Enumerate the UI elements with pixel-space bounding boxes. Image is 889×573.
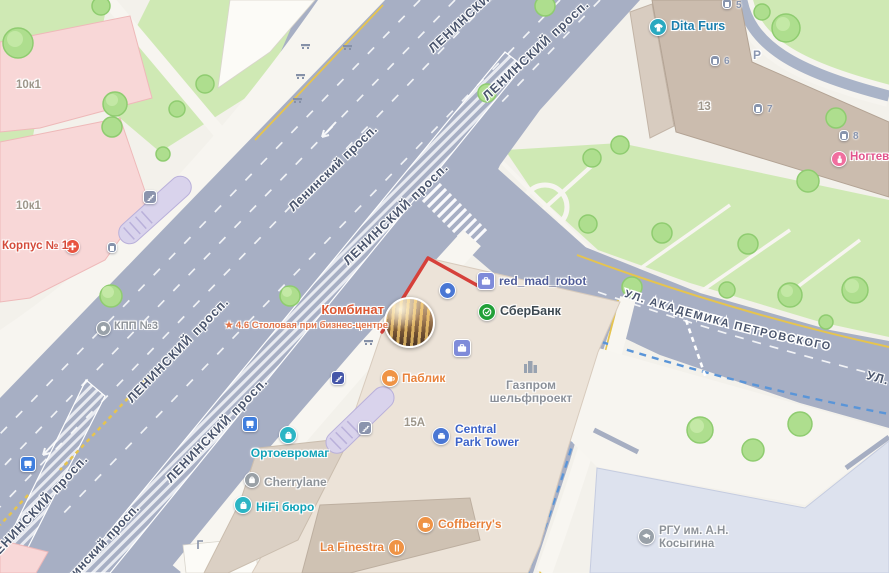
poi-label-kpp3[interactable]: КПП №3 bbox=[114, 320, 158, 332]
kombinat-photo-thumbnail[interactable] bbox=[384, 297, 435, 348]
poi-label-line: Косыгина bbox=[659, 538, 729, 551]
university-icon-rgu[interactable] bbox=[638, 528, 655, 545]
poi-label-red-mad-robot[interactable]: red_mad_robot bbox=[499, 274, 586, 288]
poi-label-hifi-buro[interactable]: HiFi бюро bbox=[256, 500, 314, 514]
office-icon-red-mad-robot[interactable] bbox=[477, 272, 495, 290]
entrance-icon-8[interactable] bbox=[839, 130, 849, 141]
entrance-icon-hospital[interactable] bbox=[107, 242, 117, 253]
poi-label-sberbank[interactable]: СберБанк bbox=[500, 304, 561, 318]
poi-label-la-finestra[interactable]: La Finestra bbox=[298, 540, 384, 554]
poi-label-rgu[interactable]: РГУ им. А.Н. Косыгина bbox=[659, 525, 729, 551]
shop-icon-hifi[interactable] bbox=[234, 496, 252, 514]
nail-salon-icon[interactable] bbox=[831, 151, 847, 167]
bus-stop-icon-1[interactable] bbox=[242, 416, 258, 432]
poi-label-dita-furs[interactable]: Dita Furs bbox=[671, 19, 725, 33]
cafe-icon-coffberrys[interactable] bbox=[417, 516, 434, 533]
map-viewport[interactable]: ЛЕНИНСКИЙ ЛЕНИНСКИЙ просп. Ленинский про… bbox=[0, 0, 889, 573]
checkpoint-icon-kpp[interactable] bbox=[96, 321, 111, 336]
building-number-15a: 15А bbox=[404, 417, 425, 429]
rating-star-icon: ★ bbox=[225, 320, 234, 331]
entrance-icon-6[interactable] bbox=[710, 55, 720, 66]
entrance-number: 8 bbox=[853, 131, 859, 142]
poi-label-central-park-tower[interactable]: Central Park Tower bbox=[455, 423, 519, 449]
building-number-10k1: 10к1 bbox=[16, 79, 41, 91]
entrance-number: 5 bbox=[736, 0, 742, 11]
poi-label-coffberrys[interactable]: Coffberry's bbox=[438, 517, 502, 531]
cafe-icon-pablik[interactable] bbox=[381, 369, 399, 387]
underpass-sign-icon-1[interactable] bbox=[143, 190, 157, 204]
entrance-number: 6 bbox=[724, 56, 730, 67]
entrance-number: 7 bbox=[767, 104, 773, 115]
poi-label-line: шельфпроект bbox=[471, 392, 591, 405]
entrance-icon-5[interactable] bbox=[722, 0, 732, 9]
business-center-icon-cpt[interactable] bbox=[432, 427, 450, 445]
office-building-icon-gazprom[interactable] bbox=[523, 360, 538, 373]
poi-label-ortoevromag[interactable]: Ортоевромаг bbox=[230, 446, 350, 460]
parking-label: P bbox=[753, 48, 761, 62]
bus-stop-icon-2[interactable] bbox=[20, 456, 36, 472]
poi-label-pablik[interactable]: Паблик bbox=[402, 371, 445, 385]
poi-category: Столовая при бизнес-центре bbox=[252, 320, 388, 331]
shop-icon-ortoevromag[interactable] bbox=[279, 426, 297, 444]
poi-label-nail-studio[interactable]: Ногтевая bbox=[850, 151, 889, 163]
poi-label-cherrylane[interactable]: Cherrylane bbox=[264, 475, 327, 489]
underpass-sign-icon-3[interactable] bbox=[358, 421, 372, 435]
sberbank-icon[interactable] bbox=[478, 303, 496, 321]
entrance-icon-7[interactable] bbox=[753, 103, 763, 114]
shop-icon-cherrylane[interactable] bbox=[244, 472, 260, 488]
poi-dot-icon[interactable] bbox=[439, 282, 456, 299]
poi-label-gazprom[interactable]: Газпром шельфпроект bbox=[471, 379, 591, 405]
poi-sub-kombinat[interactable]: ★ 4.6 Столовая при бизнес-центре bbox=[210, 320, 388, 331]
restaurant-icon-la-finestra[interactable] bbox=[388, 539, 405, 556]
clothing-store-icon[interactable] bbox=[649, 18, 667, 36]
poi-label-korpus1[interactable]: Корпус № 1 bbox=[2, 240, 68, 252]
building-number-10k1-2: 10к1 bbox=[16, 200, 41, 212]
rating-value: 4.6 bbox=[236, 320, 249, 331]
underpass-sign-icon-2[interactable] bbox=[331, 371, 345, 385]
poi-label-kombinat[interactable]: Комбинат bbox=[248, 302, 384, 317]
poi-label-line: РГУ им. А.Н. bbox=[659, 525, 729, 538]
office-icon-unlabeled[interactable] bbox=[453, 339, 471, 357]
poi-label-line: Park Tower bbox=[455, 436, 519, 449]
building-number-13: 13 bbox=[698, 101, 711, 113]
